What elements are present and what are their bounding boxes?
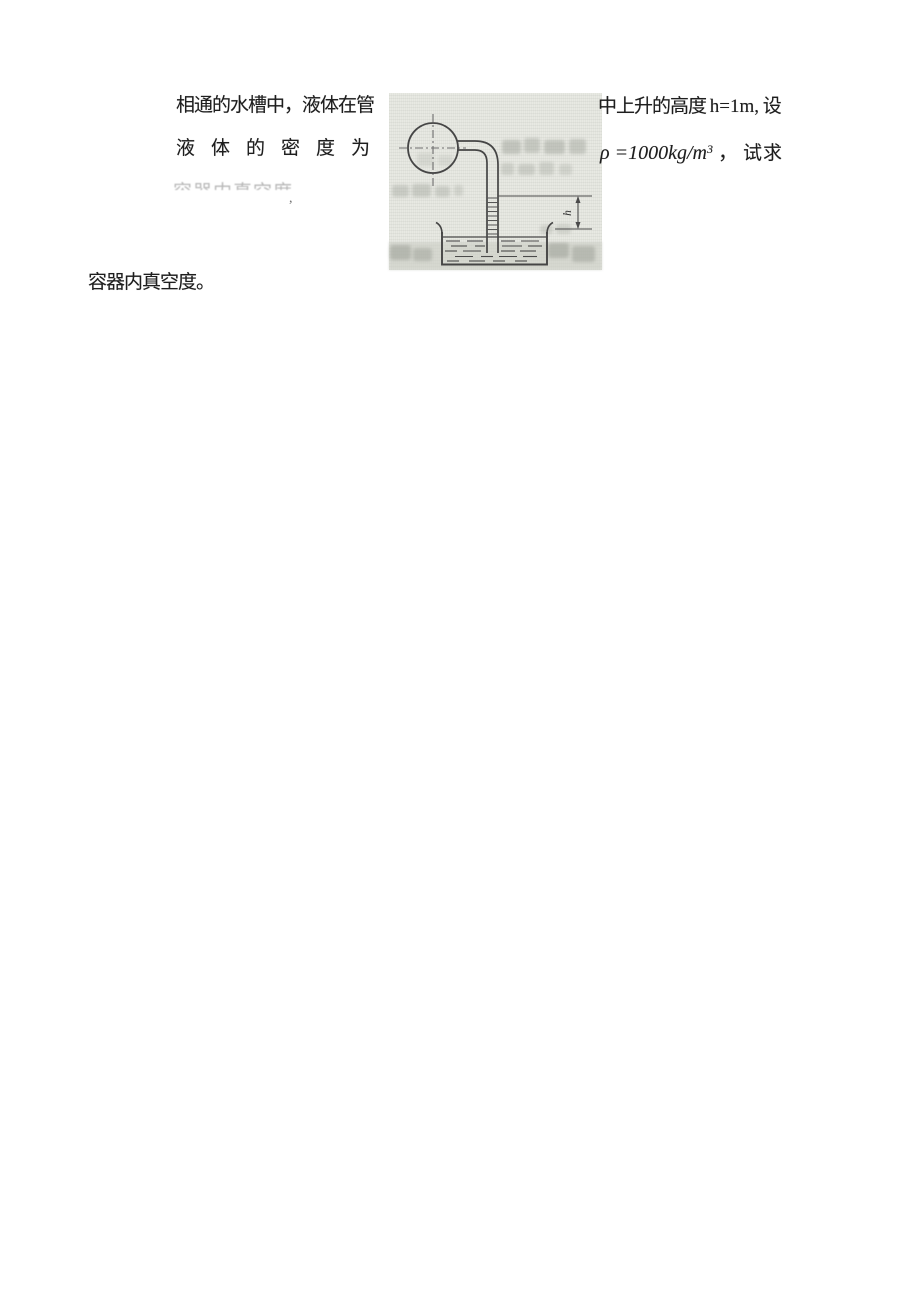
diagram-svg: h [389,93,602,270]
formula-superscript: 3 [707,142,713,156]
water-dashes [445,241,542,261]
paragraph-right-line2-formula: ρ =1000kg/m3 ， 试求 [600,136,783,165]
stray-comma-mark: , [289,191,293,207]
figure-vacuum-vessel-diagram: h [389,93,602,270]
formula-rho: ρ [600,142,610,164]
formula-suffix: 试求 [743,143,783,164]
right-line1-math: h=1m, [710,96,759,117]
paragraph-bottom-line: 容器内真空度。 [88,271,214,295]
right-line1-suffix: 设 [763,96,781,117]
paragraph-right-line1: 中上升的高度 h=1m, 设 [598,95,781,119]
right-line1-prefix: 中上升的高度 [598,96,706,117]
tube-outer-wall [457,141,499,253]
document-page: 相通的水槽中，液体在管 液体的密度为 容器内真空度 , [0,0,920,1301]
paragraph-left-line1: 相通的水槽中，液体在管 [176,94,376,118]
dimension-arrow-down [576,222,581,229]
paragraph-left-line3-clipped: 容器内真空度 [173,182,298,190]
dimension-h-label: h [562,210,574,216]
formula-comma: ， [718,142,738,164]
dimension-arrow-up [576,196,581,203]
formula-body: =1000kg/m [615,142,707,164]
tube-liquid-hatch [487,198,498,234]
paragraph-left-line2: 液体的密度为 [176,137,386,161]
